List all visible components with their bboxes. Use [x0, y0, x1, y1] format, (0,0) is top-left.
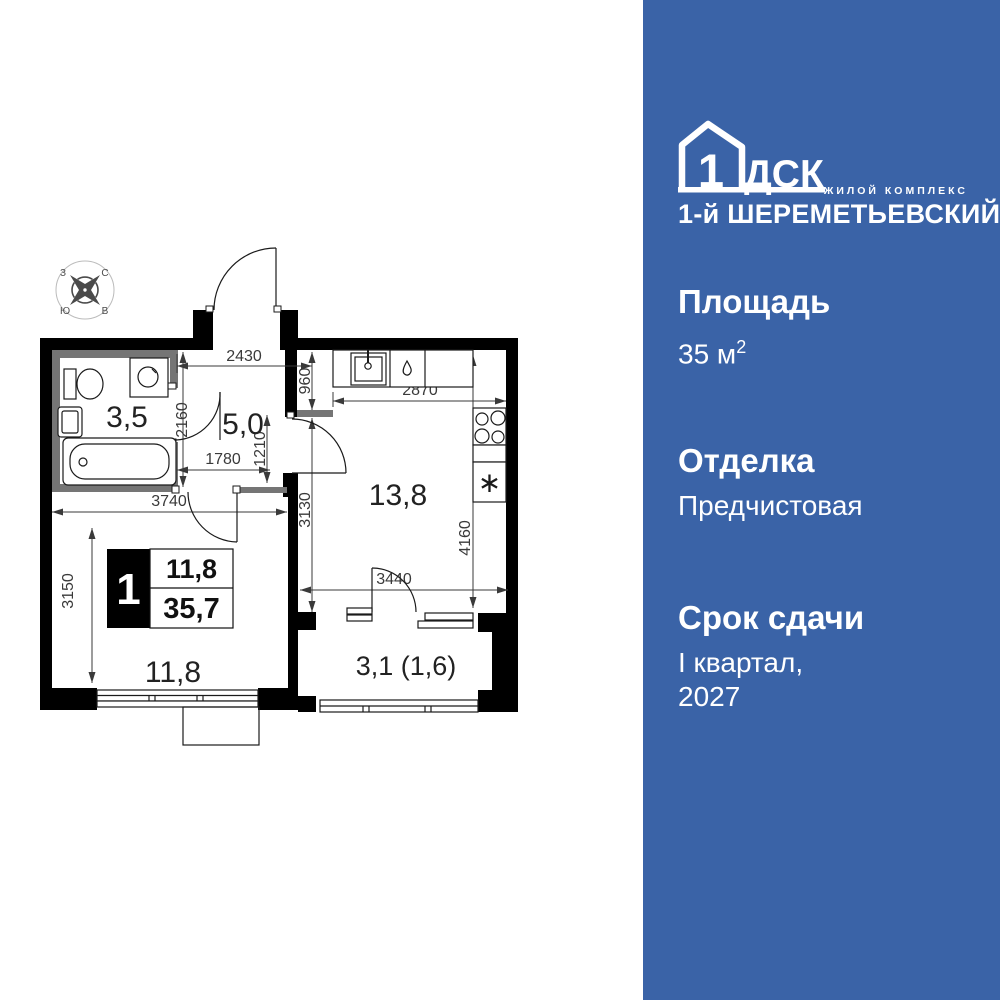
kitchen-counter-2 [473, 445, 506, 462]
bathroom-sink-icon [58, 407, 82, 437]
washing-machine-icon [130, 358, 168, 397]
dimensions: 2430 960 2160 1210 1780 [52, 348, 508, 683]
real-estate-card: З С Ю В [0, 0, 1000, 1000]
svg-text:960: 960 [297, 368, 314, 395]
spec-area: Площадь 35 м2 [678, 283, 830, 371]
balcony-window [320, 700, 478, 712]
bathtub-icon [63, 438, 176, 485]
fridge-icon: ∗ [473, 462, 506, 502]
dim-hall-top: 960 [297, 352, 316, 410]
svg-text:1780: 1780 [205, 451, 241, 468]
kitchen-sink-icon [351, 350, 386, 385]
deadline-value: I квартал, 2027 [678, 646, 864, 714]
spec-deadline: Срок сдачи I квартал, 2027 [678, 599, 864, 714]
lower-balcony-outline [183, 707, 259, 745]
compass-north: С [101, 268, 108, 279]
apartment-badge: 1 11,8 35,7 [107, 549, 233, 628]
stove-icon [473, 408, 506, 445]
living-room-door [188, 492, 237, 542]
deadline-line1: I квартал, [678, 646, 864, 680]
hallway-area-label: 5,0 [222, 408, 264, 441]
svg-text:4160: 4160 [457, 520, 474, 556]
finish-label: Отделка [678, 442, 863, 480]
logo-tagline: ЖИЛОЙ КОМПЛЕКС [678, 185, 968, 197]
complex-name: 1-й ШЕРЕМЕТЬЕВСКИЙ [678, 199, 1000, 230]
svg-text:2430: 2430 [226, 348, 262, 365]
deadline-label: Срок сдачи [678, 599, 864, 637]
living-room-window [97, 690, 258, 707]
bathroom-area-label: 3,5 [106, 401, 148, 434]
svg-text:3130: 3130 [297, 492, 314, 528]
kitchen-area-label: 13,8 [369, 479, 427, 512]
compass-west: З [60, 268, 66, 279]
area-sup: 2 [736, 337, 746, 357]
entrance-door [214, 248, 276, 310]
fridge-glyph: ∗ [478, 467, 501, 498]
dim-living-height: 3150 [60, 528, 96, 683]
dim-living-width: 3740 [52, 493, 287, 516]
balcony-area-label: 3,1 (1,6) [356, 651, 457, 681]
badge-living-area: 11,8 [166, 554, 217, 584]
spec-finish: Отделка Предчистовая [678, 442, 863, 523]
toilet-icon [64, 369, 103, 399]
finish-value: Предчистовая [678, 489, 863, 523]
kitchen-door [292, 419, 346, 473]
area-label: Площадь [678, 283, 830, 321]
dim-kitchen-inner-height: 3130 [297, 418, 316, 612]
floor-plan: З С Ю В [0, 0, 643, 1000]
compass-east: В [102, 306, 109, 317]
area-value: 35 м2 [678, 330, 830, 371]
living-room-area-label: 11,8 [145, 656, 201, 689]
svg-text:2160: 2160 [174, 402, 191, 438]
badge-room-count: 1 [116, 565, 140, 614]
svg-text:3150: 3150 [60, 573, 77, 609]
svg-text:3740: 3740 [151, 493, 187, 510]
apartment-sidebar: 1 ДСК ЖИЛОЙ КОМПЛЕКС 1-й ШЕРЕМЕТЬЕВСКИЙ … [643, 0, 1000, 1000]
kitchen-balcony-window [347, 608, 473, 628]
compass-icon: З С Ю В [56, 261, 114, 319]
deadline-line2: 2027 [678, 680, 864, 714]
badge-total-area: 35,7 [163, 593, 219, 625]
compass-south: Ю [60, 306, 70, 317]
